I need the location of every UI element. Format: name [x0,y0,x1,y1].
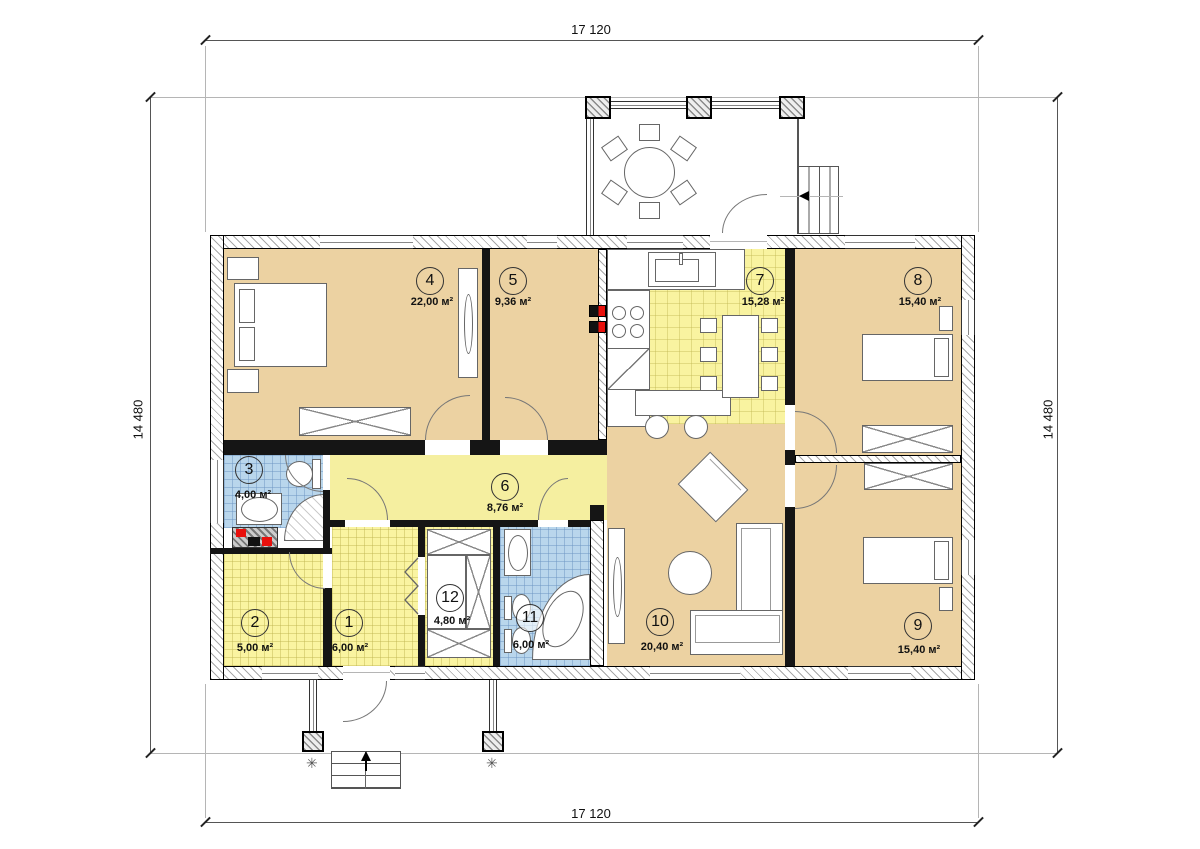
nightstand-icon [939,587,953,611]
fridge-icon [607,348,650,390]
entrance-door-arc [343,681,387,722]
terrace-railing [586,116,594,235]
wall-segment [590,520,604,666]
dimension-label-bottom: 17 120 [571,806,611,821]
kitchen-sink-icon [648,252,716,287]
porch-column [482,731,504,752]
stove-burner-icon [630,306,644,320]
terrace-chair-icon [639,124,660,141]
bidet-tank-icon [504,629,512,653]
room-6-area: 8,76 м² [487,502,523,514]
boiler-red-mark [236,529,246,537]
chair-icon [761,318,778,333]
chair-icon [761,347,778,362]
door-opening [710,235,767,249]
window [627,235,683,249]
room-7-number: 7 [746,267,774,295]
bar-stool-icon [684,415,708,439]
wall-segment [470,440,500,455]
wall-segment [785,507,795,666]
porch-railing [489,680,497,732]
double-bed-icon [234,283,327,367]
door-opening [343,666,390,680]
door-arc [722,194,767,233]
window [845,235,915,249]
room-4-number: 4 [416,267,444,295]
window [395,666,425,680]
window [848,666,911,680]
nightstand-icon [939,306,953,331]
room-2-number: 2 [241,609,269,637]
terrace-edge [797,119,799,168]
coffee-table-icon [668,551,712,595]
sink-basin-icon [655,259,699,282]
extension-line [978,46,979,232]
boiler-black-mark [248,537,260,546]
room-1-area: 6,00 м² [332,642,368,654]
basin-icon [508,535,528,571]
room-11-number: 11 [516,604,544,632]
room-8-area: 15,40 м² [899,296,941,308]
wall-segment [418,520,425,557]
window [262,666,318,680]
extension-line [205,46,206,232]
wall-segment [390,520,538,527]
wall-segment [493,520,500,666]
electric-panel-icon [589,321,606,333]
steps-direction-arrow-icon [361,751,371,761]
single-bed-icon [863,537,953,584]
wall-segment [323,588,332,666]
nightstand-icon [227,369,259,393]
drainage-symbol-icon: ✳ [306,756,318,770]
window [650,666,740,680]
boiler-red-mark [262,537,272,546]
terrace-chair-icon [670,180,697,206]
faucet-icon [679,253,683,265]
room-2-area: 5,00 м² [237,642,273,654]
dimension-label-left: 14 480 [131,380,146,460]
wall-segment [785,249,795,405]
stove-burner-icon [612,306,626,320]
room-11-area: 6,00 м² [513,639,549,651]
extension-line [205,684,206,818]
pillow-icon [934,338,949,377]
wardrobe-icon [862,425,953,453]
wardrobe-icon [864,463,953,490]
room-12-number: 12 [436,584,464,612]
nightstand-icon [227,257,259,280]
room-12-area: 4,80 м² [434,615,470,627]
room-10-number: 10 [646,608,674,636]
room-5-area: 9,36 м² [495,296,531,308]
dimension-line-right [1057,97,1058,754]
stairs-direction-arrow-icon [799,191,809,201]
dimension-label-top: 17 120 [571,22,611,37]
sofa-icon [690,610,783,655]
terrace-table-icon [624,147,675,198]
chair-icon [700,318,717,333]
dimension-line-bottom [205,822,979,823]
room-1-number: 1 [335,609,363,637]
window [961,300,975,335]
tv-cabinet-icon [458,268,478,378]
pillow-icon [239,289,255,323]
stove-burner-icon [612,324,626,338]
drainage-symbol-icon: ✳ [486,756,498,770]
wall-segment [210,235,224,680]
extension-line [150,753,1057,754]
terrace-column [779,96,805,119]
toilet-tank-icon [504,596,512,620]
porch-column [302,731,324,752]
room-3-number: 3 [235,456,263,484]
room-9-area: 15,40 м² [898,644,940,656]
washbasin-icon [504,529,531,576]
chair-icon [761,376,778,391]
window [527,235,557,249]
chair-icon [700,376,717,391]
wall-segment [418,615,425,666]
wall-segment [785,450,795,465]
sofa-seat [695,615,780,643]
window [320,235,413,249]
window [210,460,224,523]
terrace-railing [610,101,687,109]
dimension-label-right: 14 480 [1041,380,1056,460]
electric-panel-icon [589,305,606,317]
room-9-number: 9 [904,612,932,640]
threshold-line [343,672,390,673]
wall-segment [330,520,345,527]
wall-segment [482,249,490,440]
wall-segment [598,249,607,440]
stairs-line [780,196,843,197]
room-5-number: 5 [499,267,527,295]
bar-stool-icon [645,415,669,439]
terrace-chair-icon [601,180,628,206]
single-bed-icon [862,334,953,381]
folding-door-icon [402,557,420,615]
room-8-number: 8 [904,267,932,295]
room-3-area: 4,00 м² [235,489,271,501]
wall-segment [323,490,330,548]
chair-icon [700,347,717,362]
room-10-area: 20,40 м² [641,641,683,653]
terrace-chair-icon [601,136,628,162]
room-7-area: 15,28 м² [742,296,784,308]
tv-cabinet-icon [608,528,625,644]
kitchen-island-icon [635,390,731,416]
tv-icon [464,294,473,354]
terrace-column [585,96,611,119]
porch-railing [309,680,317,732]
wardrobe-icon [427,529,491,555]
dining-table-icon [722,315,759,398]
terrace-column [686,96,712,119]
pillow-icon [934,541,949,580]
room-4-area: 22,00 м² [411,296,453,308]
wall-segment [795,455,961,463]
wall-segment [590,505,604,520]
tv-icon [613,557,622,617]
terrace-chair-icon [670,136,697,162]
threshold-line [710,241,767,242]
wardrobe-icon [299,407,411,436]
room-6-number: 6 [491,473,519,501]
pillow-icon [239,327,255,361]
extension-line [978,684,979,818]
terrace-chair-icon [639,202,660,219]
wall-segment [548,440,607,455]
stove-burner-icon [630,324,644,338]
wall-segment [224,440,425,455]
terrace-railing [711,101,780,109]
wardrobe-icon [427,629,491,658]
window [961,540,975,575]
dimension-line-left [150,97,151,754]
dimension-line-top [205,40,979,41]
floor-plan-canvas: 17 120 17 120 14 480 14 480 [0,0,1200,849]
